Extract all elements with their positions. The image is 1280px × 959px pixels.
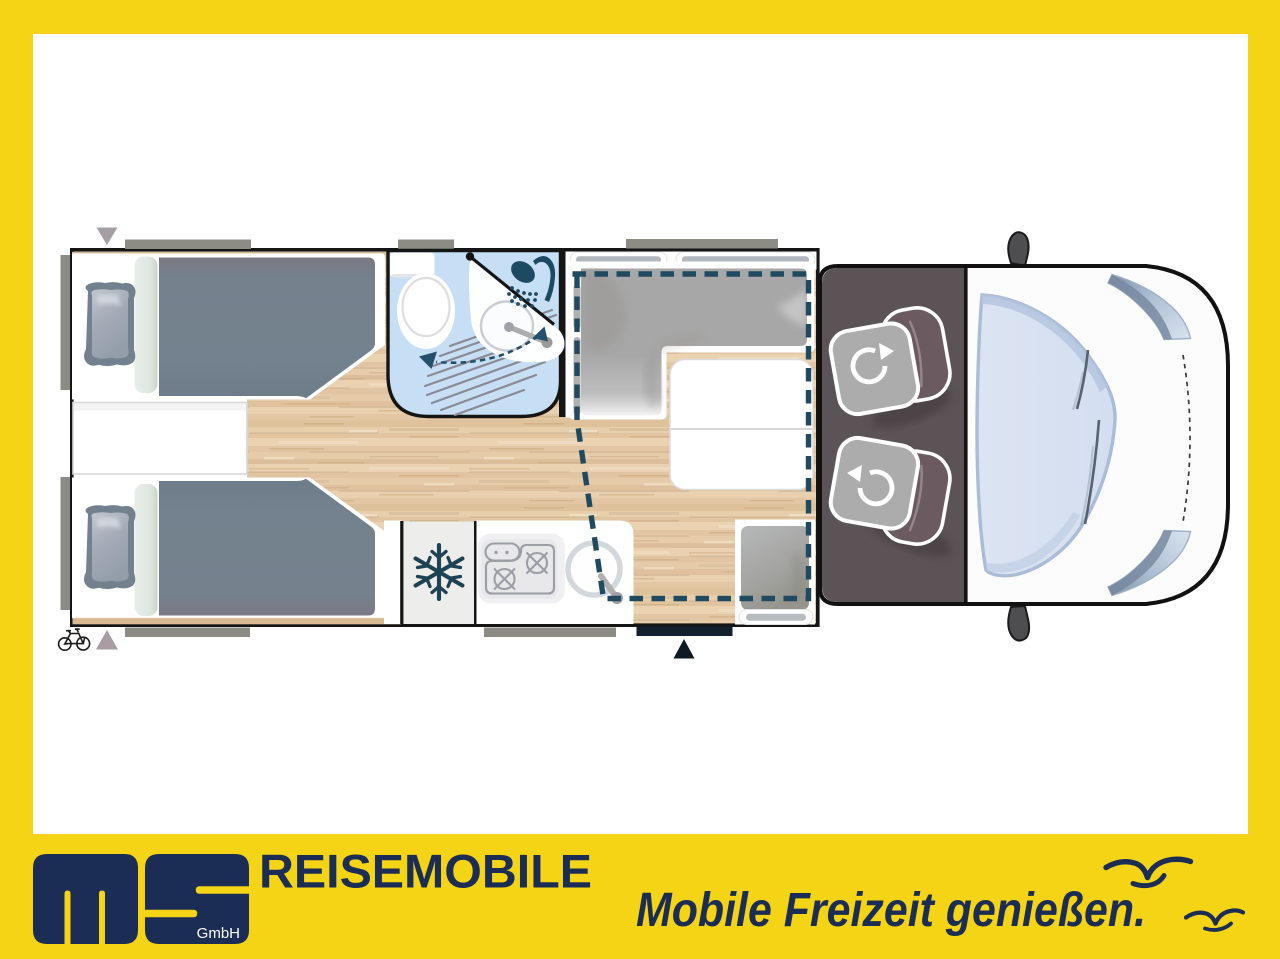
svg-text:GmbH: GmbH xyxy=(197,925,240,942)
svg-text:Mobile Freizeit genießen.: Mobile Freizeit genießen. xyxy=(636,884,1146,937)
svg-text:REISEMOBILE: REISEMOBILE xyxy=(259,845,592,898)
